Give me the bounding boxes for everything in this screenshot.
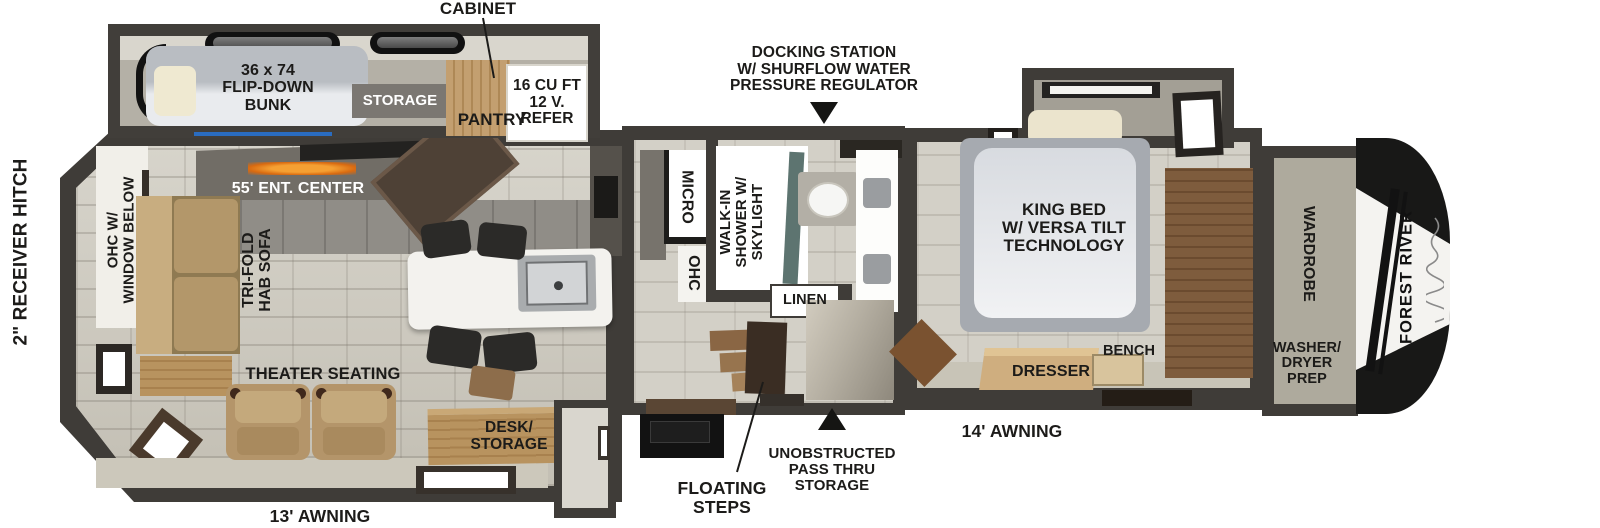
steps-pointer-line: [737, 382, 763, 472]
floorplan-canvas: FOREST RIVER 2" RECEIVER HITCH CABINET 3…: [0, 0, 1600, 528]
cabinet-pointer-line: [483, 18, 494, 78]
callout-lines: [0, 0, 1600, 528]
